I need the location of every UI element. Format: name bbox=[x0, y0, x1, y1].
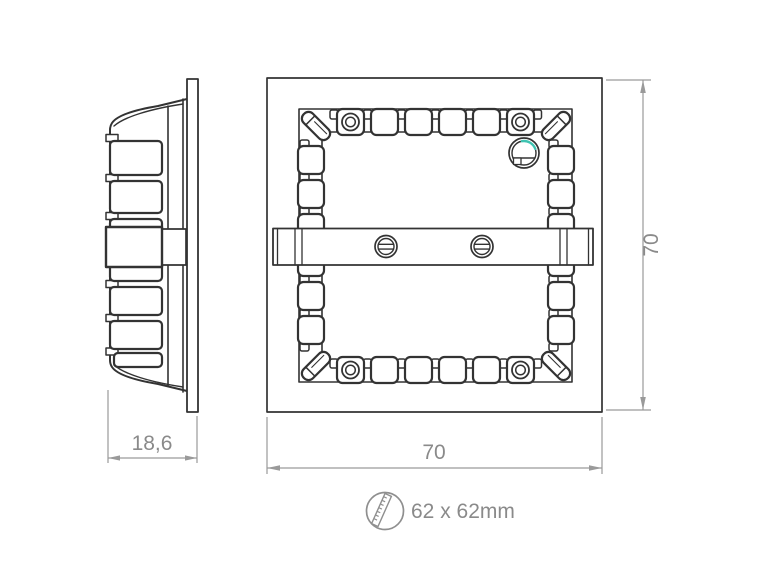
fin bbox=[110, 181, 162, 213]
twist-lock-detail bbox=[509, 138, 539, 168]
clip bbox=[371, 357, 398, 383]
dimension-label: 70 bbox=[422, 441, 445, 464]
technical-drawing-sheet: 18,6 70 70 bbox=[0, 0, 767, 575]
clip-hole bbox=[512, 114, 529, 131]
clip bbox=[548, 282, 574, 310]
clip bbox=[548, 180, 574, 208]
cutout-note: 62 x 62mm bbox=[367, 493, 515, 530]
clip bbox=[439, 109, 466, 135]
ruler-body bbox=[372, 494, 392, 527]
ruler-icon bbox=[367, 493, 404, 530]
cutout-size-label: 62 x 62mm bbox=[411, 500, 515, 523]
clip bbox=[405, 357, 432, 383]
arrowhead bbox=[185, 455, 197, 460]
clip bbox=[473, 357, 500, 383]
clip bbox=[371, 109, 398, 135]
clip bbox=[548, 146, 574, 174]
arrowhead bbox=[108, 455, 120, 460]
clip bbox=[298, 316, 324, 344]
fin bbox=[114, 353, 162, 367]
fin bbox=[110, 321, 162, 349]
dimension-label: 70 bbox=[640, 233, 663, 256]
clip bbox=[298, 282, 324, 310]
side-view bbox=[106, 79, 198, 412]
dimension-label: 18,6 bbox=[132, 432, 173, 455]
clip-hole bbox=[342, 114, 359, 131]
arrowhead bbox=[640, 80, 646, 93]
clip bbox=[473, 109, 500, 135]
arrowhead bbox=[640, 397, 646, 410]
fin bbox=[110, 141, 162, 175]
clip bbox=[405, 109, 432, 135]
clip bbox=[298, 146, 324, 174]
arrowhead bbox=[267, 465, 280, 470]
screw-head bbox=[375, 236, 397, 258]
front-view bbox=[267, 78, 602, 412]
clip-hole bbox=[512, 362, 529, 379]
fin bbox=[110, 287, 162, 315]
dimension-front-height: 70 bbox=[606, 80, 663, 410]
dimension-front-width: 70 bbox=[267, 417, 602, 474]
drawing-svg: 18,6 70 70 bbox=[0, 0, 767, 575]
flange-plate-edge bbox=[187, 79, 198, 412]
bar-body bbox=[273, 229, 593, 266]
mounting-bar bbox=[273, 229, 593, 266]
arrowhead bbox=[589, 465, 602, 470]
screw-head bbox=[471, 236, 493, 258]
clip bbox=[439, 357, 466, 383]
twist-lock-notch bbox=[514, 158, 522, 165]
spring-clip-block bbox=[106, 227, 162, 267]
dimension-side-depth: 18,6 bbox=[108, 390, 197, 463]
clip bbox=[548, 316, 574, 344]
clip-hole bbox=[342, 362, 359, 379]
clip bbox=[298, 180, 324, 208]
